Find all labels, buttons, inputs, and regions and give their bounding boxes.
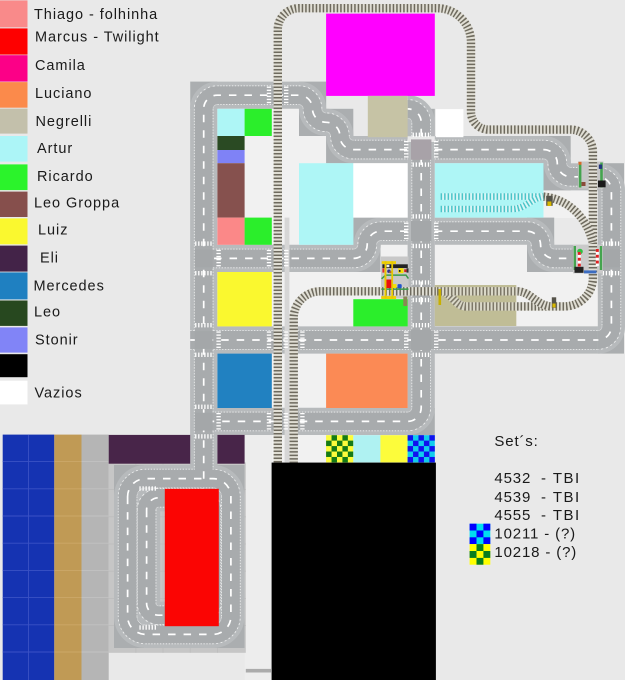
svg-text:Eli: Eli xyxy=(40,251,59,267)
svg-text:- TBI: - TBI xyxy=(541,489,581,506)
svg-text:Set´s:: Set´s: xyxy=(494,433,538,450)
svg-text:10211 - (?): 10211 - (?) xyxy=(494,526,576,543)
svg-text:10218 - (?): 10218 - (?) xyxy=(494,544,577,561)
svg-text:Stonir: Stonir xyxy=(35,333,79,349)
svg-text:4532: 4532 xyxy=(494,470,531,487)
svg-text:Luiz: Luiz xyxy=(38,223,68,239)
svg-text:Negrelli: Negrelli xyxy=(36,114,93,130)
svg-text:4539: 4539 xyxy=(494,489,531,506)
svg-text:- TBI: - TBI xyxy=(541,470,581,487)
svg-text:Luciano: Luciano xyxy=(35,86,92,102)
svg-text:Marcus - Twilight: Marcus - Twilight xyxy=(35,30,160,46)
svg-text:Camila: Camila xyxy=(35,58,86,74)
svg-text:4555: 4555 xyxy=(494,507,531,524)
svg-text:Ricardo: Ricardo xyxy=(37,169,94,185)
svg-text:Thiago - folhinha: Thiago - folhinha xyxy=(34,7,158,23)
svg-text:Leo: Leo xyxy=(34,305,61,321)
svg-text:- TBI: - TBI xyxy=(541,507,581,524)
svg-text:Vazios: Vazios xyxy=(35,386,83,402)
svg-text:Mercedes: Mercedes xyxy=(34,279,105,295)
svg-text:Artur: Artur xyxy=(37,141,73,157)
svg-text:Leo Groppa: Leo Groppa xyxy=(34,196,120,212)
